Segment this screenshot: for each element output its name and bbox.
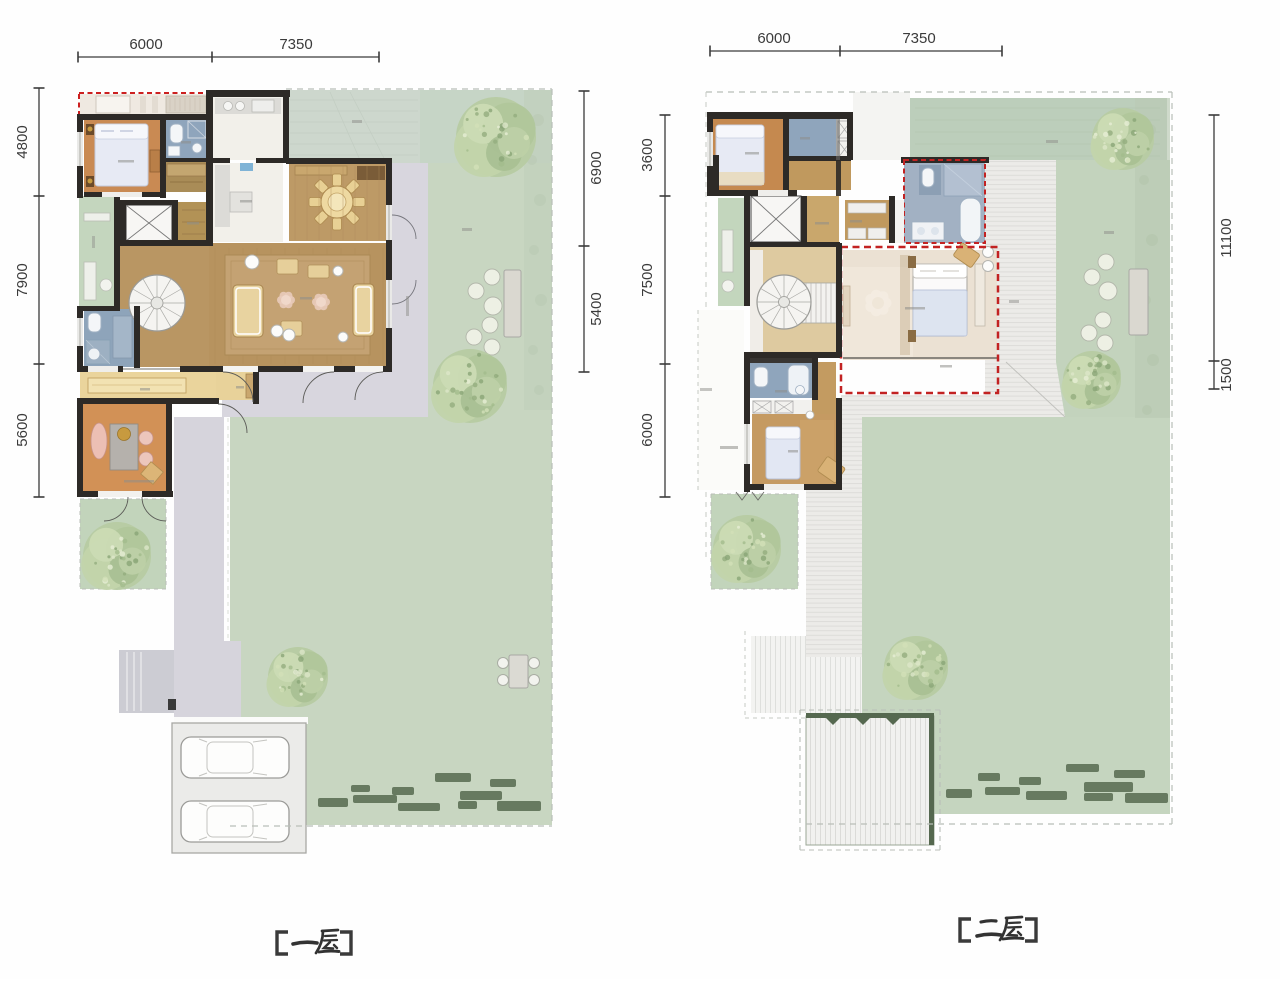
svg-text:7900: 7900 [14, 263, 31, 296]
svg-text:7350: 7350 [279, 36, 312, 53]
svg-text:1500: 1500 [1218, 358, 1235, 391]
svg-text:7500: 7500 [639, 263, 656, 296]
svg-text:5600: 5600 [14, 413, 31, 446]
svg-text:3600: 3600 [639, 138, 656, 171]
svg-text:11100: 11100 [1218, 218, 1235, 258]
svg-text:7350: 7350 [902, 30, 935, 47]
svg-text:6900: 6900 [588, 151, 605, 184]
svg-text:6000: 6000 [639, 413, 656, 446]
svg-text:6000: 6000 [757, 30, 790, 47]
svg-text:5400: 5400 [588, 292, 605, 325]
svg-text:6000: 6000 [129, 36, 162, 53]
svg-text:4800: 4800 [14, 125, 31, 158]
